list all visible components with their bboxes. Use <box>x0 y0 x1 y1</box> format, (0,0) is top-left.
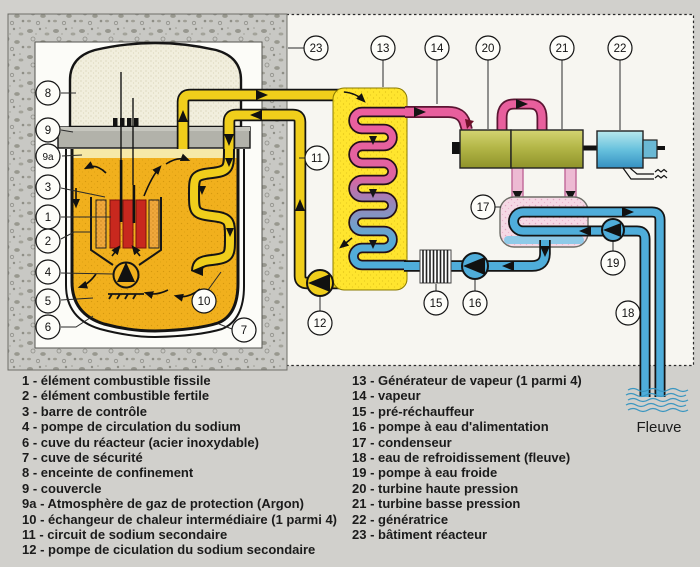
callout-17: 17 <box>471 195 495 219</box>
callout-13: 13 <box>371 36 395 60</box>
river: Fleuve <box>626 389 688 437</box>
svg-text:5: 5 <box>45 296 51 308</box>
callout-9: 9 <box>36 118 60 142</box>
generator <box>597 131 643 168</box>
svg-text:11: 11 <box>311 153 323 165</box>
callout-16: 16 <box>463 291 487 315</box>
legend-item: 3 - barre de contrôle <box>22 404 337 419</box>
legend-item: 14 - vapeur <box>352 388 582 403</box>
legend-item: 12 - pompe de ciculation du sodium secon… <box>22 542 337 557</box>
svg-text:20: 20 <box>482 43 495 55</box>
legend-item: 8 - enceinte de confinement <box>22 465 337 480</box>
callout-1: 1 <box>36 205 60 229</box>
callout-2: 2 <box>36 229 60 253</box>
callout-18: 18 <box>616 301 640 325</box>
legend-item: 19 - pompe à eau froide <box>352 465 582 480</box>
callout-6: 6 <box>36 315 60 339</box>
control-rod <box>133 185 136 223</box>
svg-text:8: 8 <box>45 88 51 100</box>
svg-text:19: 19 <box>607 258 620 270</box>
callout-19: 19 <box>601 251 625 275</box>
svg-text:17: 17 <box>477 202 490 214</box>
svg-text:2: 2 <box>45 236 51 248</box>
svg-text:13: 13 <box>377 43 390 55</box>
svg-text:10: 10 <box>198 296 211 308</box>
svg-text:12: 12 <box>314 318 327 330</box>
svg-text:22: 22 <box>614 43 627 55</box>
legend-item: 2 - élément combustible fertile <box>22 388 337 403</box>
confinement-dome <box>70 43 241 127</box>
callout-15: 15 <box>424 291 448 315</box>
svg-text:7: 7 <box>241 325 247 337</box>
callout-7: 7 <box>232 318 256 342</box>
callout-11: 11 <box>305 146 329 170</box>
callout-12: 12 <box>308 311 332 335</box>
callout-9a: 9a <box>36 144 60 168</box>
callout-23: 23 <box>304 36 328 60</box>
svg-text:6: 6 <box>45 322 51 334</box>
legend-item: 10 - échangeur de chaleur intermédiaire … <box>22 512 337 527</box>
legend-item: 22 - génératrice <box>352 512 582 527</box>
callout-3: 3 <box>36 175 60 199</box>
legend-item: 16 - pompe à eau d'alimentation <box>352 419 582 434</box>
legend-item: 9a - Atmosphère de gaz de protection (Ar… <box>22 496 337 511</box>
legend-left-column: 1 - élément combustible fissile 2 - élém… <box>22 373 337 558</box>
shaft-stub <box>452 142 460 154</box>
legend-item: 6 - cuve du réacteur (acier inoxydable) <box>22 435 337 450</box>
svg-text:9a: 9a <box>42 152 54 163</box>
legend-item: 11 - circuit de sodium secondaire <box>22 527 337 542</box>
cold-water-pump <box>602 219 624 241</box>
svg-text:1: 1 <box>45 212 51 224</box>
svg-text:23: 23 <box>310 43 323 55</box>
legend-item: 15 - pré-réchauffeur <box>352 404 582 419</box>
lp-turbine <box>511 130 583 168</box>
svg-text:18: 18 <box>622 308 635 320</box>
fertile-element <box>149 200 159 248</box>
river-label: Fleuve <box>636 419 681 436</box>
hp-turbine <box>460 130 511 168</box>
legend-item: 9 - couvercle <box>22 481 337 496</box>
legend-item: 18 - eau de refroidissement (fleuve) <box>352 450 582 465</box>
legend-item: 20 - turbine haute pression <box>352 481 582 496</box>
callout-14: 14 <box>425 36 449 60</box>
svg-text:4: 4 <box>45 267 52 279</box>
fissile-element <box>110 200 120 248</box>
fissile-element <box>136 200 146 248</box>
legend-item: 4 - pompe de circulation du sodium <box>22 419 337 434</box>
feedwater-pump <box>462 253 488 279</box>
generator-exciter <box>643 140 657 158</box>
svg-text:9: 9 <box>45 125 51 137</box>
reactor-schematic-page: Fleuve <box>0 0 700 567</box>
callout-21: 21 <box>550 36 574 60</box>
control-rod <box>120 160 123 222</box>
steam-generator <box>333 88 407 290</box>
svg-text:14: 14 <box>431 43 444 55</box>
legend-item: 1 - élément combustible fissile <box>22 373 337 388</box>
legend-item: 7 - cuve de sécurité <box>22 450 337 465</box>
legend-item: 23 - bâtiment réacteur <box>352 527 582 542</box>
callout-8: 8 <box>36 81 60 105</box>
callout-10: 10 <box>192 289 216 313</box>
callout-20: 20 <box>476 36 500 60</box>
legend-right-column: 13 - Générateur de vapeur (1 parmi 4) 14… <box>352 373 582 542</box>
callout-22: 22 <box>608 36 632 60</box>
svg-text:21: 21 <box>556 43 569 55</box>
callout-4: 4 <box>36 260 60 284</box>
legend-item: 13 - Générateur de vapeur (1 parmi 4) <box>352 373 582 388</box>
legend-item: 17 - condenseur <box>352 435 582 450</box>
fissile-element <box>123 200 133 248</box>
callout-5: 5 <box>36 289 60 313</box>
legend-item: 21 - turbine basse pression <box>352 496 582 511</box>
svg-text:3: 3 <box>45 182 51 194</box>
preheater <box>420 250 451 283</box>
svg-text:15: 15 <box>430 298 443 310</box>
svg-text:16: 16 <box>469 298 482 310</box>
fertile-element <box>96 200 106 248</box>
secondary-sodium-pump <box>307 270 333 296</box>
